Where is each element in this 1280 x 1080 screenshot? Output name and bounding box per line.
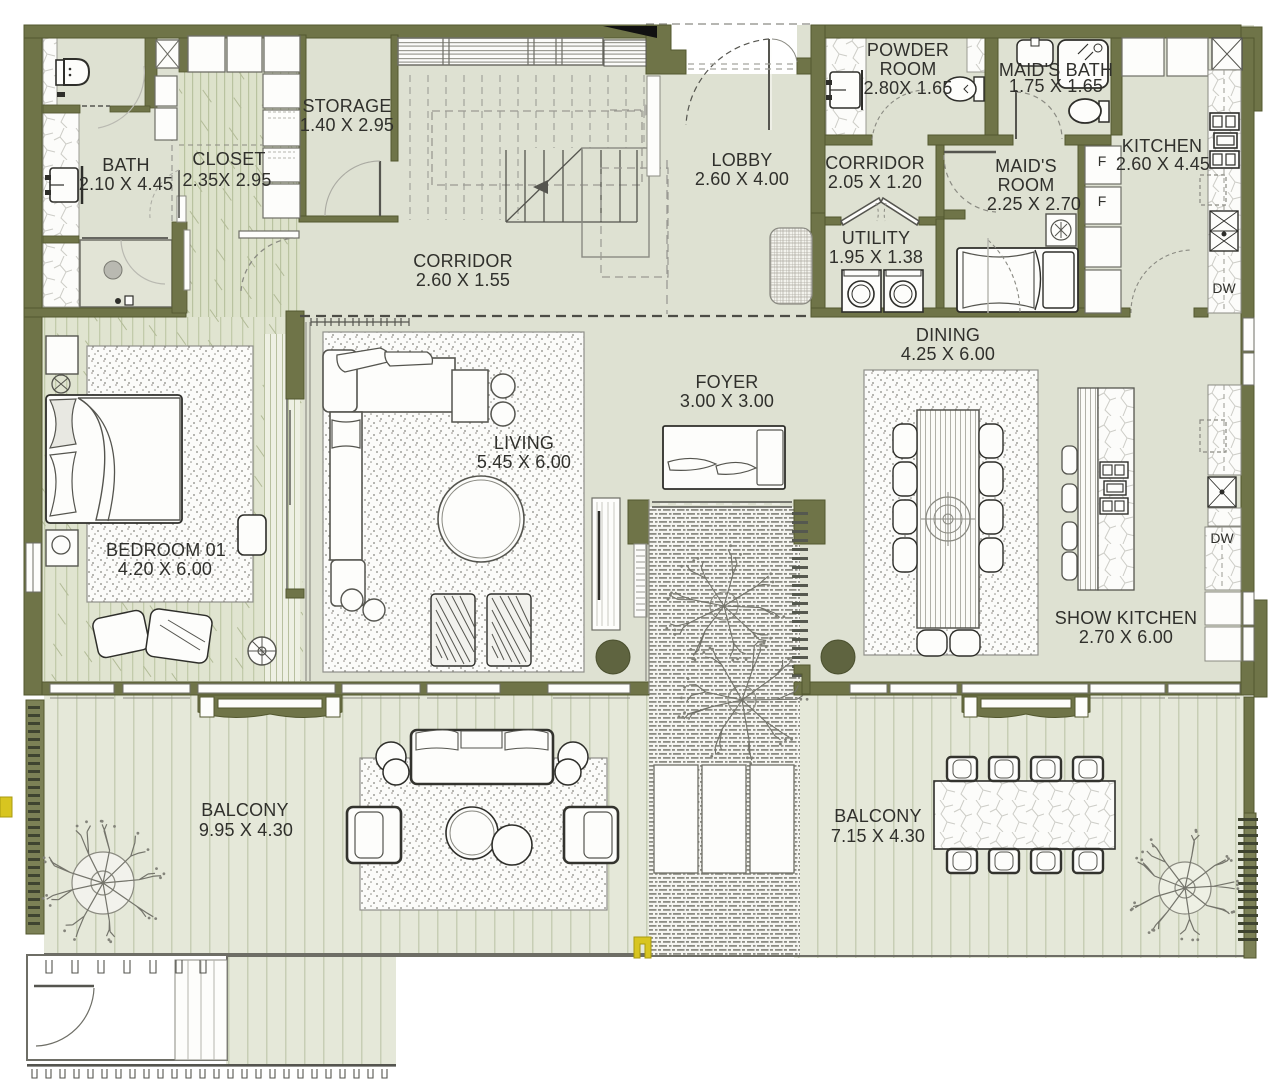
svg-text:3.00 X 3.00: 3.00 X 3.00 xyxy=(680,391,774,411)
svg-text:MAID'S: MAID'S xyxy=(995,156,1057,176)
svg-text:BALCONY: BALCONY xyxy=(201,800,288,820)
svg-text:BATH: BATH xyxy=(102,155,149,175)
svg-text:BALCONY: BALCONY xyxy=(834,806,921,826)
svg-text:2.60 X 4.00: 2.60 X 4.00 xyxy=(695,169,789,189)
svg-text:2.70 X 6.00: 2.70 X 6.00 xyxy=(1079,627,1173,647)
svg-text:ROOM: ROOM xyxy=(998,175,1055,195)
svg-text:DINING: DINING xyxy=(916,325,980,345)
svg-text:F: F xyxy=(1098,193,1107,209)
svg-text:5.45 X 6.00: 5.45 X 6.00 xyxy=(477,452,571,472)
svg-text:1.75 X 1.65: 1.75 X 1.65 xyxy=(1009,76,1103,96)
svg-text:2.10 X 4.45: 2.10 X 4.45 xyxy=(79,174,173,194)
svg-text:1.40 X 2.95: 1.40 X 2.95 xyxy=(300,115,394,135)
svg-text:STORAGE: STORAGE xyxy=(302,96,391,116)
svg-text:BEDROOM 01: BEDROOM 01 xyxy=(106,540,226,560)
svg-text:KITCHEN: KITCHEN xyxy=(1122,136,1202,156)
svg-text:F: F xyxy=(1098,153,1107,169)
svg-text:CLOSET: CLOSET xyxy=(192,149,265,169)
svg-text:2.05 X 1.20: 2.05 X 1.20 xyxy=(828,172,922,192)
svg-text:2.25 X 2.70: 2.25 X 2.70 xyxy=(987,194,1081,214)
svg-text:POWDER: POWDER xyxy=(867,40,949,60)
svg-text:CORRIDOR: CORRIDOR xyxy=(413,251,513,271)
svg-text:9.95 X 4.30: 9.95 X 4.30 xyxy=(199,820,293,840)
svg-text:LIVING: LIVING xyxy=(494,433,554,453)
svg-text:2.35X 2.95: 2.35X 2.95 xyxy=(182,170,271,190)
svg-text:ROOM: ROOM xyxy=(880,59,937,79)
svg-text:2.60 X 4.45: 2.60 X 4.45 xyxy=(1116,154,1210,174)
svg-text:DW: DW xyxy=(1212,280,1236,296)
svg-text:4.20 X 6.00: 4.20 X 6.00 xyxy=(118,559,212,579)
svg-text:7.15 X 4.30: 7.15 X 4.30 xyxy=(831,826,925,846)
svg-text:SHOW KITCHEN: SHOW KITCHEN xyxy=(1055,608,1197,628)
svg-text:FOYER: FOYER xyxy=(695,372,758,392)
svg-text:2.60 X 1.55: 2.60 X 1.55 xyxy=(416,270,510,290)
svg-text:2.80X 1.65: 2.80X 1.65 xyxy=(863,78,952,98)
svg-text:LOBBY: LOBBY xyxy=(711,150,772,170)
svg-text:CORRIDOR: CORRIDOR xyxy=(825,153,925,173)
svg-text:1.95 X 1.38: 1.95 X 1.38 xyxy=(829,247,923,267)
svg-text:4.25 X 6.00: 4.25 X 6.00 xyxy=(901,344,995,364)
svg-text:DW: DW xyxy=(1210,530,1234,546)
svg-text:UTILITY: UTILITY xyxy=(842,228,910,248)
